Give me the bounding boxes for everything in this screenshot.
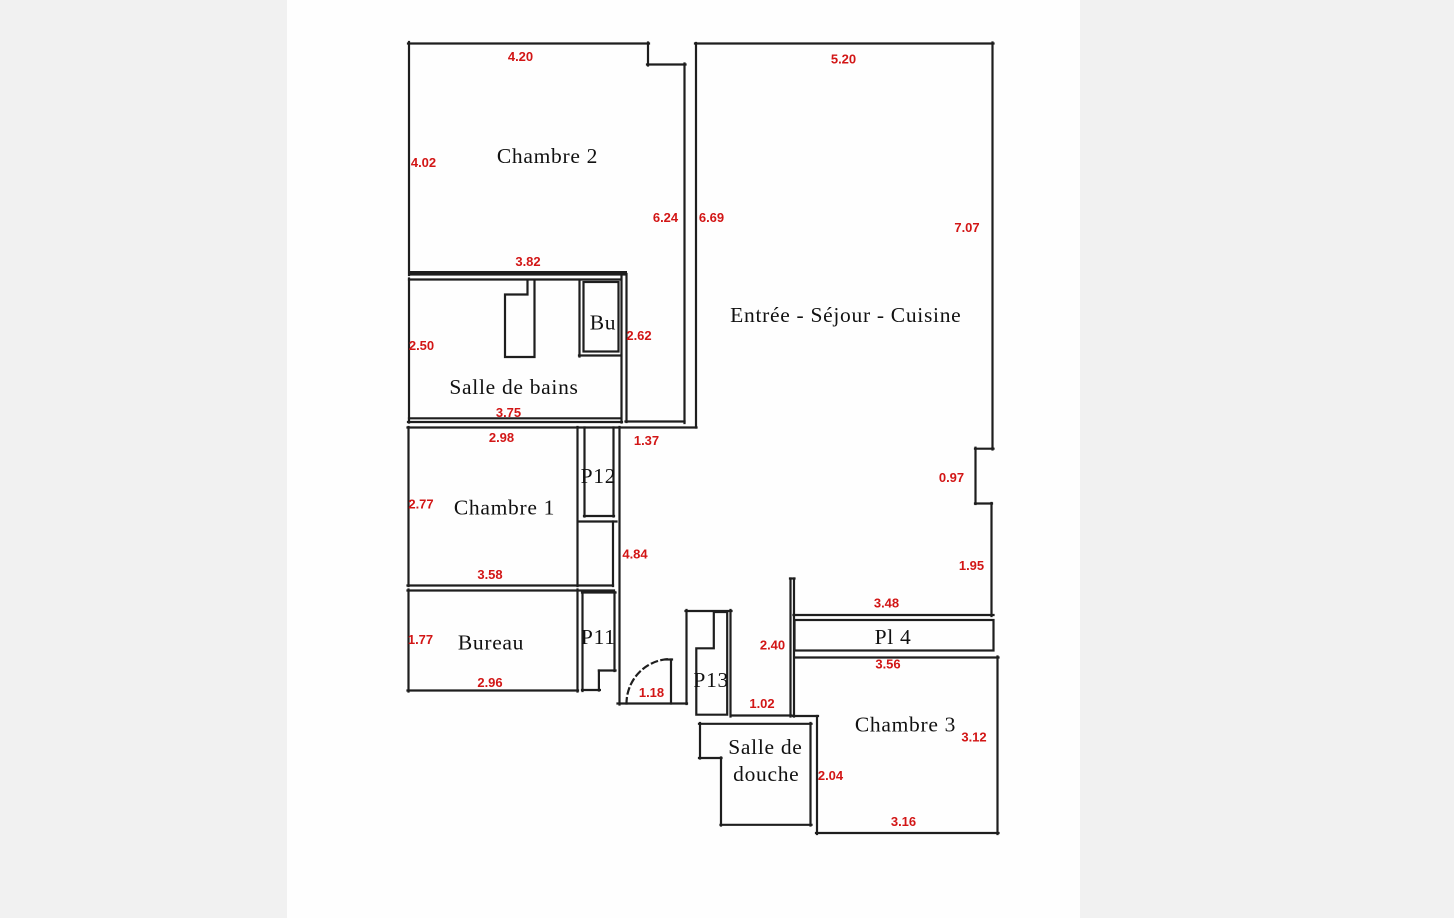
svg-text:1.02: 1.02 [749, 696, 774, 711]
svg-text:Bureau: Bureau [458, 631, 524, 655]
svg-text:Entrée - Séjour - Cuisine: Entrée - Séjour - Cuisine [730, 303, 961, 327]
svg-text:Salle de bains: Salle de bains [449, 375, 578, 399]
svg-text:P12: P12 [581, 464, 617, 488]
svg-text:6.69: 6.69 [699, 210, 724, 225]
svg-text:1.77: 1.77 [408, 632, 433, 647]
svg-text:P13: P13 [693, 668, 729, 692]
svg-text:4.20: 4.20 [508, 49, 533, 64]
svg-text:2.50: 2.50 [409, 338, 434, 353]
svg-text:Salle de: Salle de [728, 735, 802, 759]
svg-text:1.18: 1.18 [639, 685, 664, 700]
svg-text:3.48: 3.48 [874, 596, 899, 611]
svg-text:Pl 4: Pl 4 [875, 625, 912, 649]
svg-text:2.98: 2.98 [489, 430, 514, 445]
svg-text:3.56: 3.56 [875, 657, 900, 672]
svg-text:Chambre 3: Chambre 3 [855, 713, 956, 737]
svg-text:0.97: 0.97 [939, 470, 964, 485]
svg-text:2.04: 2.04 [818, 768, 844, 783]
svg-text:3.12: 3.12 [961, 730, 986, 745]
svg-text:3.75: 3.75 [496, 405, 521, 420]
svg-text:4.84: 4.84 [622, 547, 648, 562]
svg-text:1.37: 1.37 [634, 433, 659, 448]
svg-text:douche: douche [733, 762, 799, 786]
svg-text:Bu: Bu [590, 311, 617, 335]
svg-text:4.02: 4.02 [411, 155, 436, 170]
svg-text:P11: P11 [581, 625, 616, 649]
svg-text:6.24: 6.24 [653, 210, 679, 225]
svg-text:2.62: 2.62 [626, 328, 651, 343]
svg-text:7.07: 7.07 [954, 220, 979, 235]
svg-text:1.95: 1.95 [959, 558, 984, 573]
svg-text:2.40: 2.40 [760, 638, 785, 653]
svg-text:3.58: 3.58 [477, 567, 502, 582]
svg-text:Chambre 2: Chambre 2 [497, 144, 598, 168]
svg-text:Chambre 1: Chambre 1 [454, 496, 555, 520]
svg-text:5.20: 5.20 [831, 52, 856, 67]
svg-text:2.96: 2.96 [477, 675, 502, 690]
svg-text:3.16: 3.16 [891, 814, 916, 829]
svg-text:3.82: 3.82 [515, 254, 540, 269]
svg-text:2.77: 2.77 [408, 497, 433, 512]
